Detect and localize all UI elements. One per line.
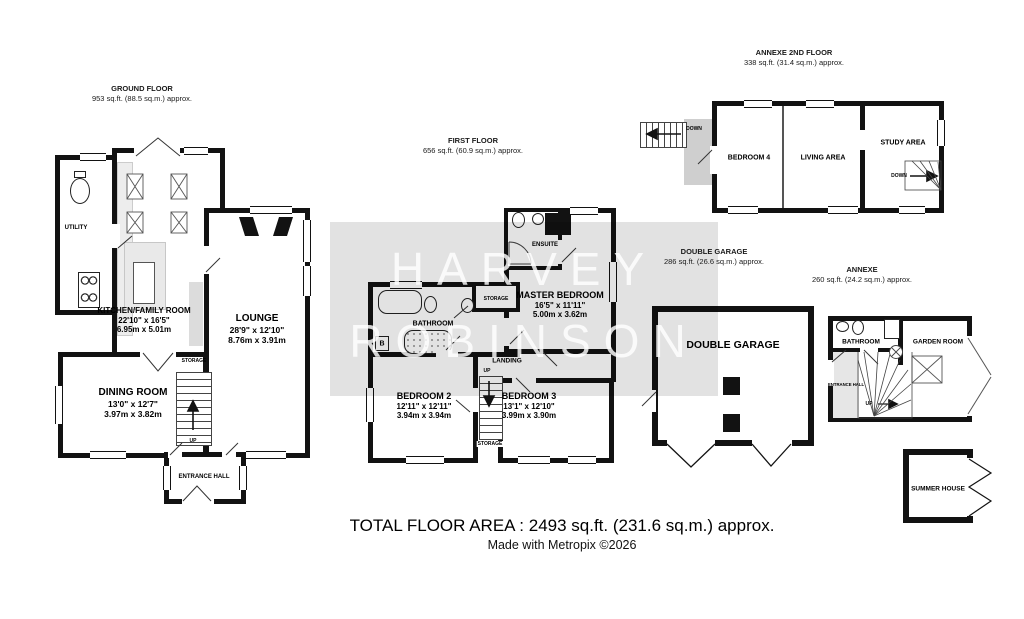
label-entrance-hall: ENTRANCE HALL	[179, 474, 230, 480]
header-title: ANNEXE	[812, 265, 912, 275]
label-study-down: DOWN	[891, 173, 907, 179]
label-annexe-entrance-hall: ENTRANCE HALL	[828, 382, 864, 387]
room-dims-ft: 12'11" x 12'11"	[397, 402, 452, 412]
label-summer-house: SUMMER HOUSE	[911, 486, 965, 493]
label-bedroom4: BEDROOM 4	[728, 155, 770, 162]
header-area: 656 sq.ft. (60.9 sq.m.) approx.	[423, 146, 523, 156]
room-dims-m: 6.95m x 5.01m	[97, 325, 190, 335]
label-study-area: STUDY AREA	[880, 140, 925, 147]
fireplace-icon	[239, 217, 293, 236]
label-ext-down: DOWN	[686, 126, 702, 132]
room-dims-m: 3.94m x 3.94m	[397, 411, 452, 421]
room-dims-ft: 13'0" x 12'7"	[99, 399, 168, 409]
label-dining: DINING ROOM 13'0" x 12'7" 3.97m x 3.82m	[99, 387, 168, 419]
room-dims-m: 3.97m x 3.82m	[99, 409, 168, 419]
label-master-bedroom: MASTER BEDROOM 16'5" x 11'11" 5.00m x 3.…	[516, 290, 604, 320]
label-ensuite: ENSUITE	[532, 242, 558, 248]
annexe-circle-x-icon	[890, 346, 903, 359]
label-boiler: B	[379, 341, 384, 348]
label-double-garage: DOUBLE GARAGE	[686, 339, 779, 351]
label-gf-storage: STORAGE	[182, 358, 207, 364]
label-ff-storage: STORAGE	[484, 296, 509, 302]
room-dims-ft: 13'1" x 12'10"	[502, 402, 557, 412]
floorplan-canvas: HARVEY ROBINSON GROUND FLOOR 953 sq.ft. …	[0, 0, 1024, 619]
room-name: BEDROOM 2	[397, 391, 452, 402]
header-area: 286 sq.ft. (26.6 sq.m.) approx.	[664, 257, 764, 267]
room-dims-ft: 22'10" x 16'5"	[97, 316, 190, 326]
label-annexe-up: UP	[866, 401, 873, 407]
summer-house-door-chevrons	[969, 459, 991, 516]
label-bedroom3: BEDROOM 3 13'1" x 12'10" 3.99m x 3.90m	[502, 391, 557, 421]
header-annexe-2nd-floor: ANNEXE 2ND FLOOR 338 sq.ft. (31.4 sq.m.)…	[744, 48, 844, 68]
room-dims-ft: 16'5" x 11'11"	[516, 301, 604, 311]
watermark-line1: HARVEY	[330, 246, 718, 292]
label-gf-up: UP	[190, 438, 197, 444]
watermark-line2: ROBINSON	[330, 318, 718, 364]
label-kitchen: KITCHEN/FAMILY ROOM 22'10" x 16'5" 6.95m…	[97, 306, 190, 335]
garage-door-chevrons	[667, 444, 791, 467]
label-bathroom: BATHROOM	[413, 321, 454, 328]
header-first-floor: FIRST FLOOR 656 sq.ft. (60.9 sq.m.) appr…	[423, 136, 523, 156]
annexe-door-leaves	[968, 338, 991, 414]
label-ff-up: UP	[484, 368, 491, 374]
label-annexe-bathroom: BATHROOM	[842, 339, 880, 346]
label-utility: UTILITY	[65, 225, 88, 231]
metropix-credit: Made with Metropix ©2026	[488, 538, 637, 552]
label-landing: LANDING	[492, 358, 522, 365]
room-dims-m: 8.76m x 3.91m	[228, 335, 286, 345]
label-lounge: LOUNGE 28'9" x 12'10" 8.76m x 3.91m	[228, 313, 286, 345]
room-name: DINING ROOM	[99, 387, 168, 399]
label-bedroom2: BEDROOM 2 12'11" x 12'11" 3.94m x 3.94m	[397, 391, 452, 421]
winder-stairs-icon	[858, 352, 912, 418]
header-area: 260 sq.ft. (24.2 sq.m.) approx.	[812, 275, 912, 285]
room-name: BEDROOM 3	[502, 391, 557, 402]
header-annexe: ANNEXE 260 sq.ft. (24.2 sq.m.) approx.	[812, 265, 912, 285]
room-dims-m: 5.00m x 3.62m	[516, 310, 604, 320]
header-double-garage: DOUBLE GARAGE 286 sq.ft. (26.6 sq.m.) ap…	[664, 247, 764, 267]
header-title: ANNEXE 2ND FLOOR	[744, 48, 844, 58]
room-name: KITCHEN/FAMILY ROOM	[97, 306, 190, 316]
header-area: 338 sq.ft. (31.4 sq.m.) approx.	[744, 58, 844, 68]
label-garden-room: GARDEN ROOM	[913, 339, 963, 346]
label-ff-stairs-storage: STORAGE	[477, 441, 504, 447]
header-ground-floor: GROUND FLOOR 953 sq.ft. (88.5 sq.m.) app…	[92, 84, 192, 104]
room-name: LOUNGE	[228, 313, 286, 325]
header-area: 953 sq.ft. (88.5 sq.m.) approx.	[92, 94, 192, 104]
total-floor-area: TOTAL FLOOR AREA : 2493 sq.ft. (231.6 sq…	[350, 516, 775, 536]
room-dims-ft: 28'9" x 12'10"	[228, 325, 286, 335]
label-living-area: LIVING AREA	[801, 155, 846, 162]
header-title: DOUBLE GARAGE	[664, 247, 764, 257]
room-name: MASTER BEDROOM	[516, 290, 604, 301]
header-title: FIRST FLOOR	[423, 136, 523, 146]
header-title: GROUND FLOOR	[92, 84, 192, 94]
room-dims-m: 3.99m x 3.90m	[502, 411, 557, 421]
